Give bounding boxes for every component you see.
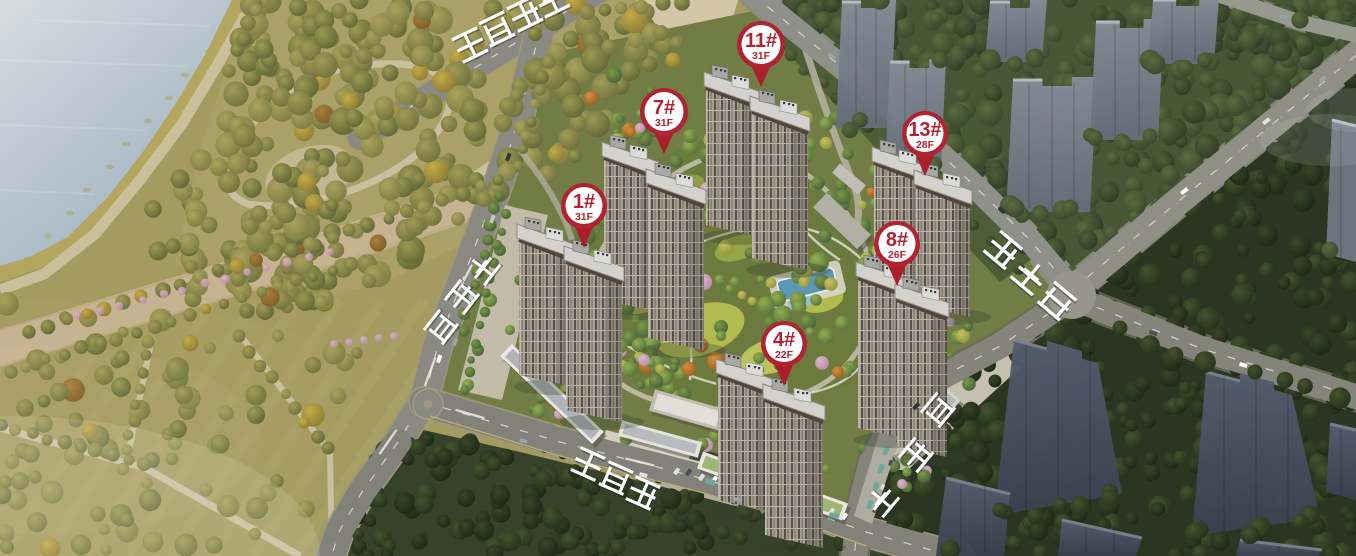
svg-text:31F: 31F — [575, 211, 594, 223]
svg-text:22F: 22F — [775, 349, 794, 361]
svg-text:31F: 31F — [752, 50, 771, 62]
svg-text:28F: 28F — [916, 139, 935, 151]
svg-text:26F: 26F — [888, 249, 907, 261]
svg-text:31F: 31F — [655, 117, 674, 129]
svg-text:4#: 4# — [773, 329, 795, 351]
svg-text:1#: 1# — [573, 191, 595, 213]
svg-text:7#: 7# — [653, 97, 675, 119]
svg-text:13#: 13# — [908, 119, 941, 141]
svg-text:8#: 8# — [886, 229, 908, 251]
svg-text:11#: 11# — [745, 30, 777, 52]
